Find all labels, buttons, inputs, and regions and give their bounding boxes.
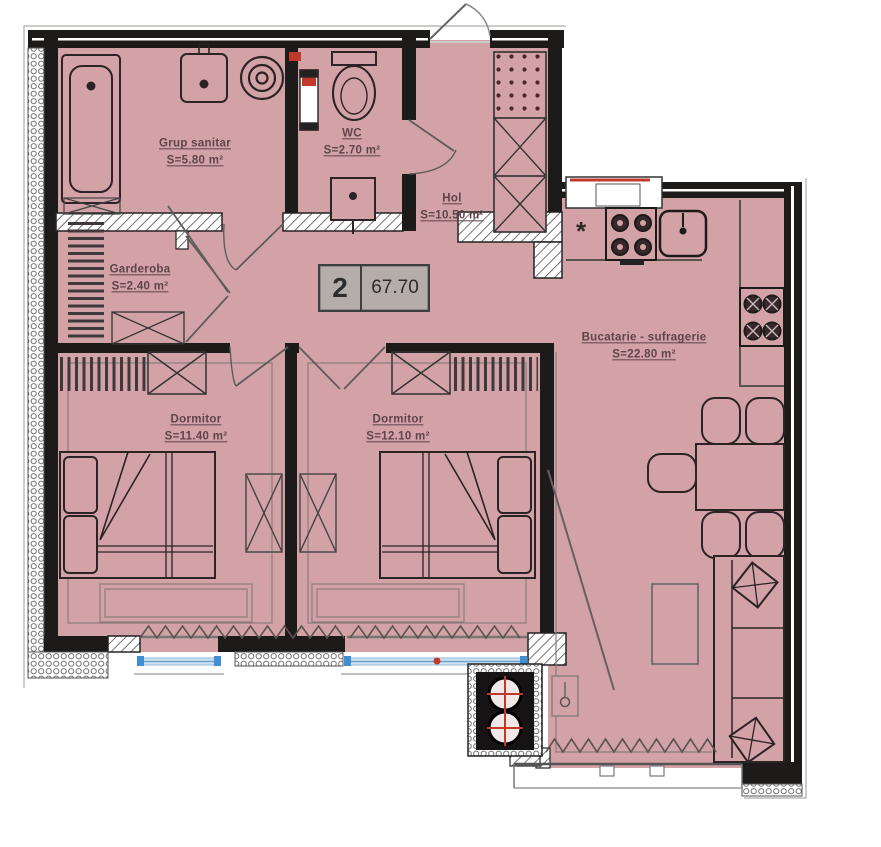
room-name: Garderoba	[55, 261, 225, 278]
bathtub-icon	[62, 55, 120, 203]
bed	[60, 452, 215, 578]
hob-icon	[740, 288, 784, 346]
room-name: Grup sanitar	[110, 135, 280, 152]
room-area: S=11.40 m²	[165, 428, 228, 445]
room-label-bucatarie: Bucatarie - sufragerie S=22.80 m²	[559, 329, 729, 362]
boiler-icon	[552, 676, 578, 716]
room-label-dormitor-1: Dormitor S=11.40 m²	[111, 411, 281, 444]
room-label-garderoba: Garderoba S=2.40 m²	[55, 261, 225, 294]
room-area: S=12.10 m²	[366, 428, 429, 445]
chair	[746, 398, 784, 444]
dining-table	[696, 444, 784, 510]
bed	[380, 452, 535, 578]
room-label-wc: WC S=2.70 m²	[267, 125, 437, 158]
room-name: Dormitor	[313, 411, 483, 428]
room-name: WC	[267, 125, 437, 142]
vent-shaft	[468, 664, 542, 756]
room-area: S=5.80 m²	[167, 152, 224, 169]
stove-icon	[606, 208, 656, 265]
unit-total-area: 67.70	[362, 266, 428, 310]
room-label-grup-sanitar: Grup sanitar S=5.80 m²	[110, 135, 280, 168]
entrance-door	[430, 4, 490, 42]
room-area: S=2.40 m²	[112, 278, 169, 295]
unit-rooms-count: 2	[320, 266, 362, 310]
room-area: S=10.50 m²	[420, 207, 483, 224]
kitchen-note-symbol: *	[576, 216, 586, 247]
toilet-icon	[332, 52, 376, 120]
room-label-dormitor-2: Dormitor S=12.10 m²	[313, 411, 483, 444]
wc-cabinet	[300, 70, 318, 130]
chair	[702, 398, 740, 444]
floor-plan: Grup sanitar S=5.80 m² WC S=2.70 m² Hol …	[0, 0, 881, 847]
room-name: Dormitor	[111, 411, 281, 428]
chair	[702, 512, 740, 558]
unit-info-box: 2 67.70	[318, 264, 430, 312]
room-area: S=22.80 m²	[612, 346, 675, 363]
room-name: Bucatarie - sufragerie	[559, 329, 729, 346]
kitchen-sink-icon	[660, 211, 706, 256]
chair	[648, 454, 696, 492]
chair	[746, 512, 784, 558]
room-area: S=2.70 m²	[324, 142, 381, 159]
room-name: Hol	[367, 190, 537, 207]
coffee-table	[652, 584, 698, 664]
sofa	[714, 556, 784, 762]
room-label-hol: Hol S=10.50 m²	[367, 190, 537, 223]
